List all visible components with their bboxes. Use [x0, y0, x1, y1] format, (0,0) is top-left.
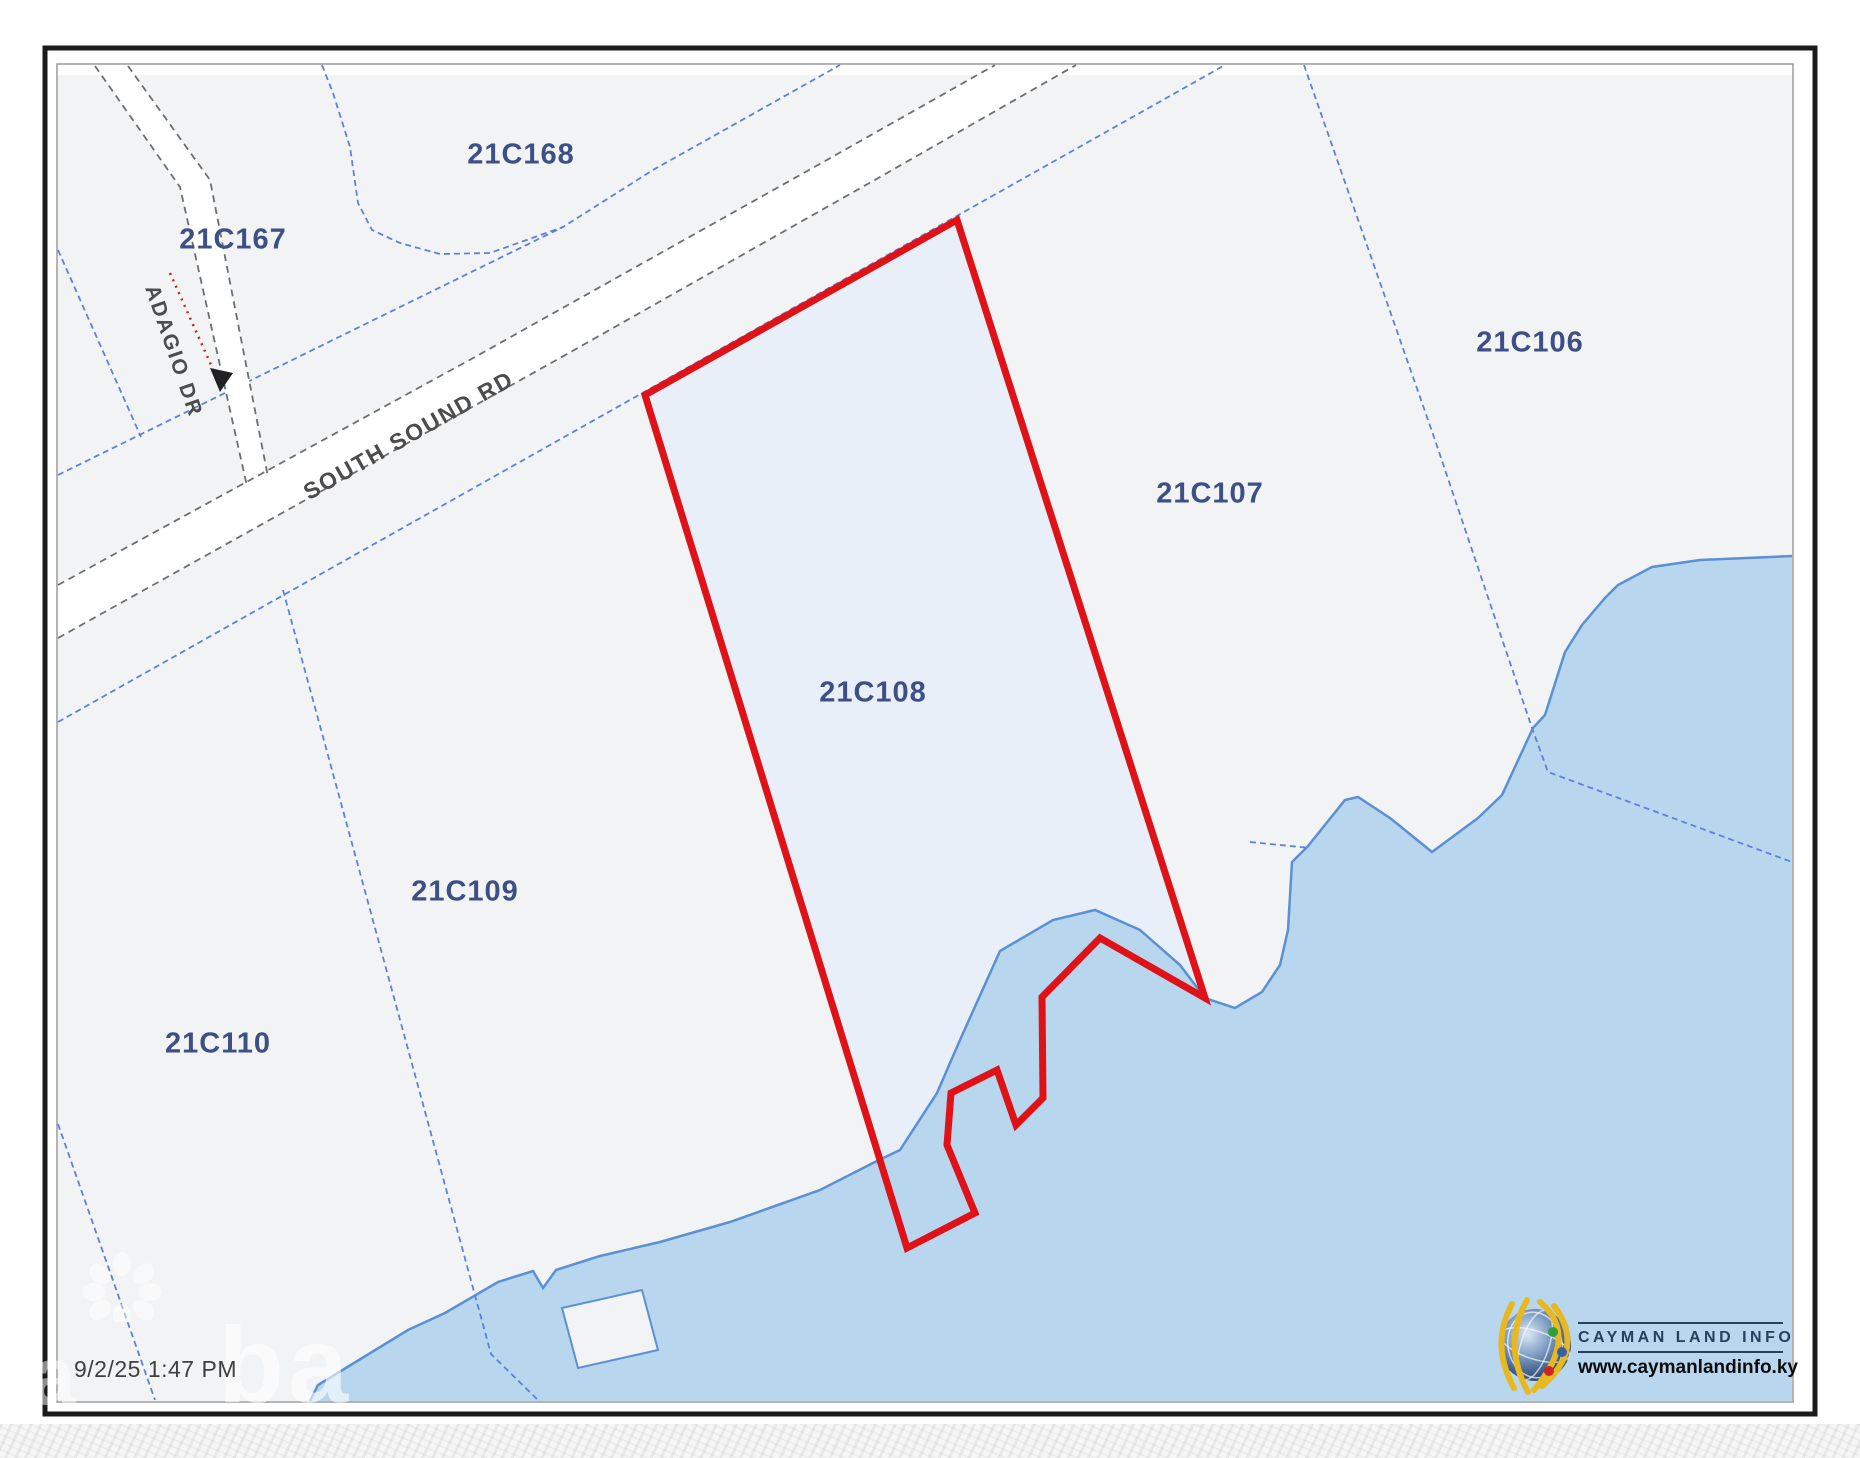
watermark-text-left: a — [30, 1330, 76, 1424]
parcel-label-21C109: 21C109 — [411, 876, 519, 909]
brand-name: CAYMAN LAND INFO — [1578, 1324, 1783, 1351]
map-top-margin — [58, 65, 1792, 75]
cayman-land-info-logo-icon — [1482, 1296, 1592, 1396]
parcel-label-21C110: 21C110 — [165, 1028, 271, 1061]
parcel-label-21C106: 21C106 — [1476, 327, 1584, 360]
watermark-text: ba — [218, 1302, 352, 1427]
parcel-label-21C167: 21C167 — [179, 224, 287, 257]
brand-website-link[interactable]: www.caymanlandinfo.ky — [1578, 1353, 1783, 1379]
parcel-label-21C108: 21C108 — [819, 677, 927, 710]
watermark-flower-icon — [82, 1252, 162, 1322]
parcel-label-21C107: 21C107 — [1156, 478, 1264, 511]
map-viewport[interactable]: ba a 21C167 21C168 21C106 21C107 21C108 … — [0, 0, 1860, 1458]
print-timestamp: 9/2/25 1:47 PM — [74, 1356, 237, 1383]
parcel-label-21C168: 21C168 — [467, 139, 575, 172]
cadastral-map-canvas[interactable] — [0, 0, 1860, 1458]
scan-noise-strip — [0, 1424, 1860, 1458]
cayman-land-info-branding: CAYMAN LAND INFO www.caymanlandinfo.ky — [1578, 1322, 1783, 1379]
